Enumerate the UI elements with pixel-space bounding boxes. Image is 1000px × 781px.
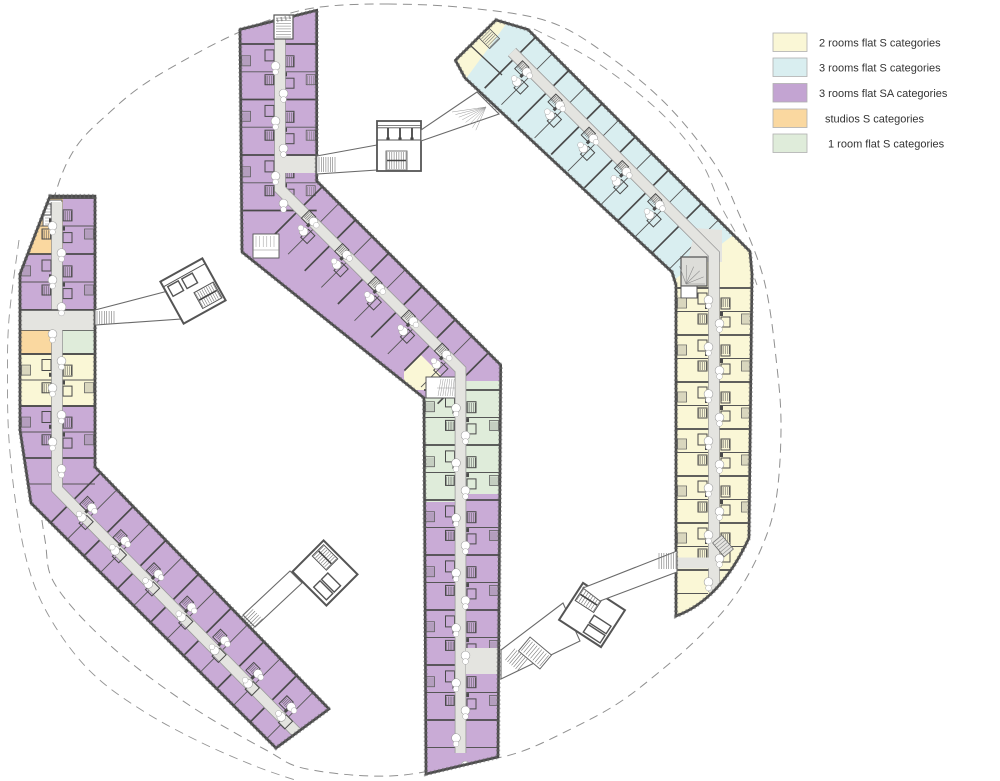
- svg-text:1 room flat S categories: 1 room flat S categories: [828, 139, 945, 151]
- svg-text:3 rooms flat SA categories: 3 rooms flat SA categories: [819, 88, 948, 100]
- svg-text:2 rooms flat S categories: 2 rooms flat S categories: [819, 38, 941, 50]
- svg-text:studios S categories: studios S categories: [825, 114, 925, 126]
- svg-text:3 rooms flat S categories: 3 rooms flat S categories: [819, 63, 941, 75]
